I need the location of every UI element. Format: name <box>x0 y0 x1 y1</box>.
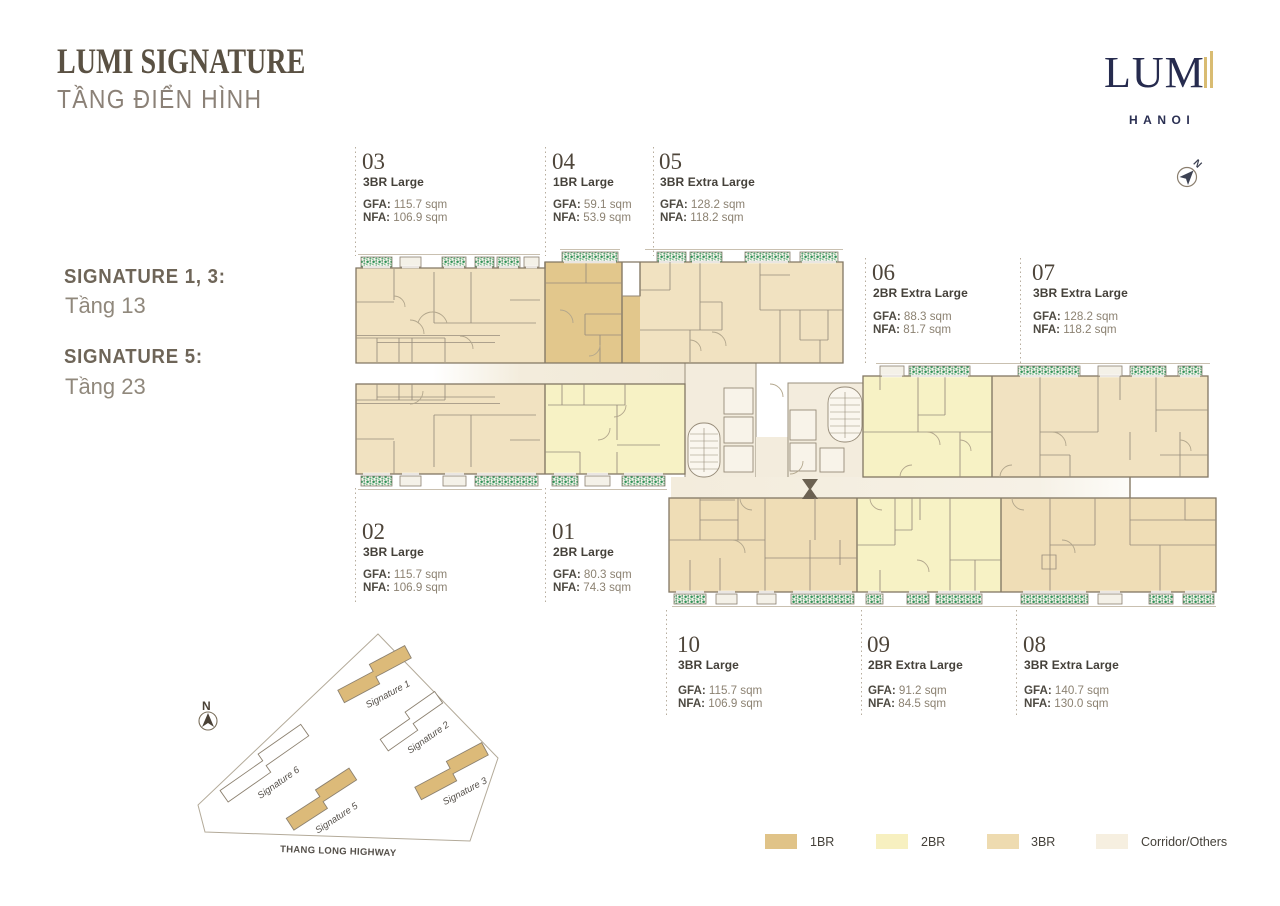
svg-text:N: N <box>202 699 211 713</box>
svg-text:THANG LONG HIGHWAY: THANG LONG HIGHWAY <box>280 844 397 859</box>
